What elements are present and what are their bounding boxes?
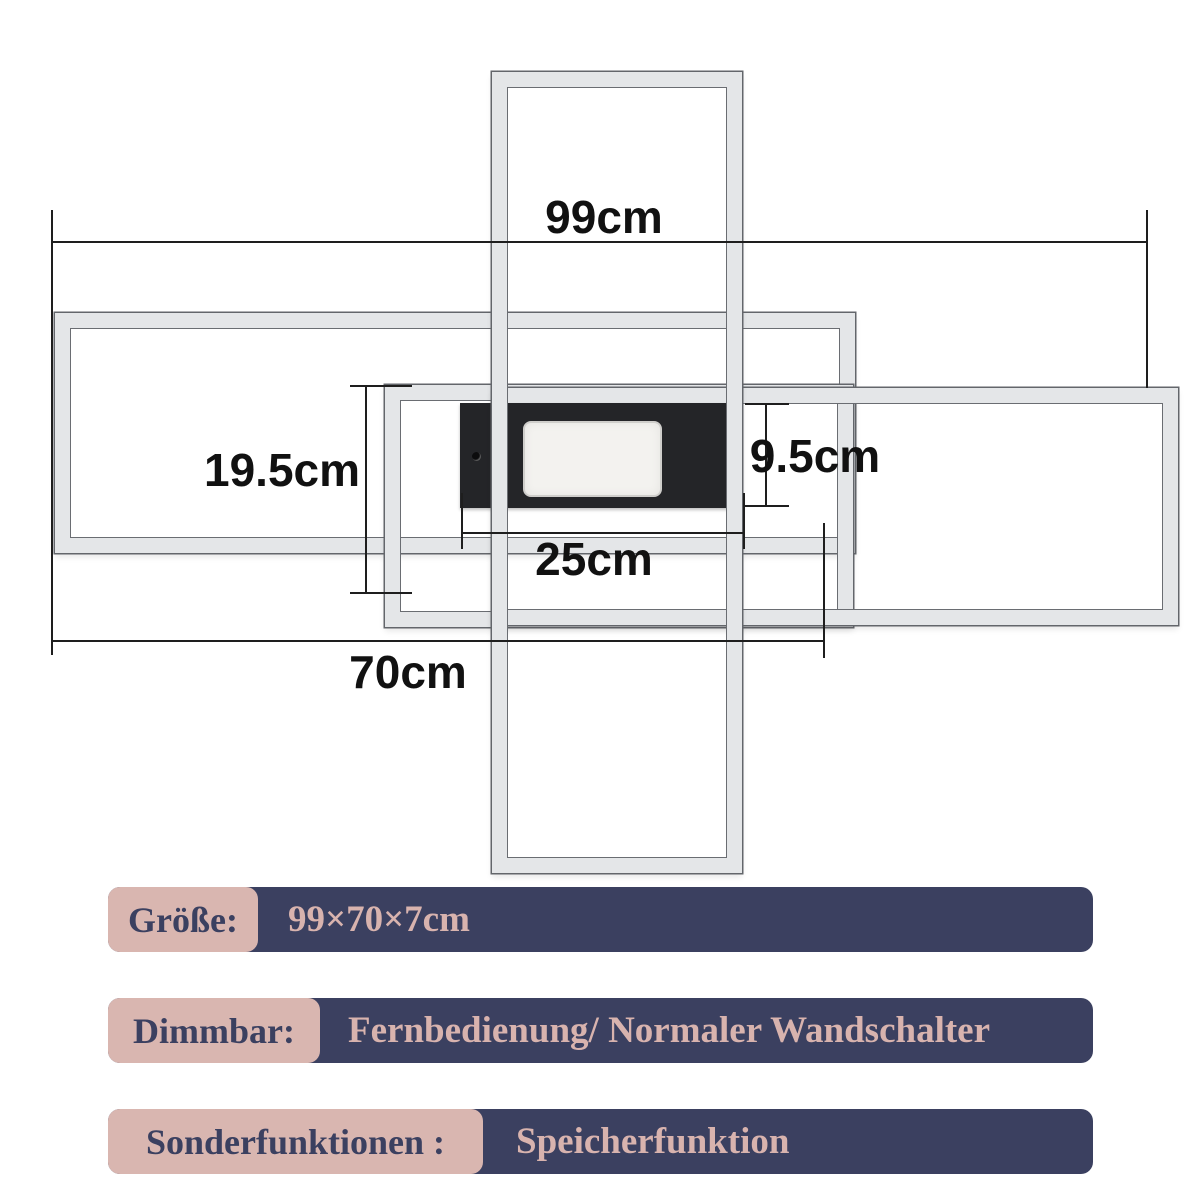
dim-95-bottom-tick [745,505,789,507]
dim-70-line [52,640,825,642]
dim-95-label: 9.5cm [750,429,880,483]
dim-70-right-tick [823,523,825,658]
spec-row-dimmable: Dimmbar: Fernbedienung/ Normaler Wandsch… [108,998,1093,1063]
spec-value-dimmable: Fernbedienung/ Normaler Wandschalter [348,998,990,1063]
product-dimension-diagram: 99cm 70cm 19.5cm 9.5cm 25cm Größe: 99×70… [0,0,1200,1200]
spec-row-special-functions: Sonderfunktionen : Speicherfunktion [108,1109,1093,1174]
dim-195-label: 19.5cm [204,443,360,497]
dim-195-bottom-tick [350,592,412,594]
spec-value-size: 99×70×7cm [288,887,470,952]
spec-label-dimmable: Dimmbar: [108,998,320,1063]
screw-dot [472,452,481,461]
dim-99-label: 99cm [545,190,663,244]
dim-25-left-tick [461,493,463,549]
dim-195-line [365,386,367,594]
spec-label-size: Größe: [108,887,258,952]
dim-99-right-tick [1146,210,1148,388]
dim-195-top-tick [350,385,412,387]
spec-row-size: Größe: 99×70×7cm [108,887,1093,952]
spec-value-special-functions: Speicherfunktion [516,1109,789,1174]
dim-25-label: 25cm [535,532,653,586]
spec-label-special-functions: Sonderfunktionen : [108,1109,483,1174]
dim-95-top-tick [745,403,789,405]
dim-left-tick [51,210,53,655]
dim-25-right-tick [743,493,745,549]
dim-70-label: 70cm [349,645,467,699]
